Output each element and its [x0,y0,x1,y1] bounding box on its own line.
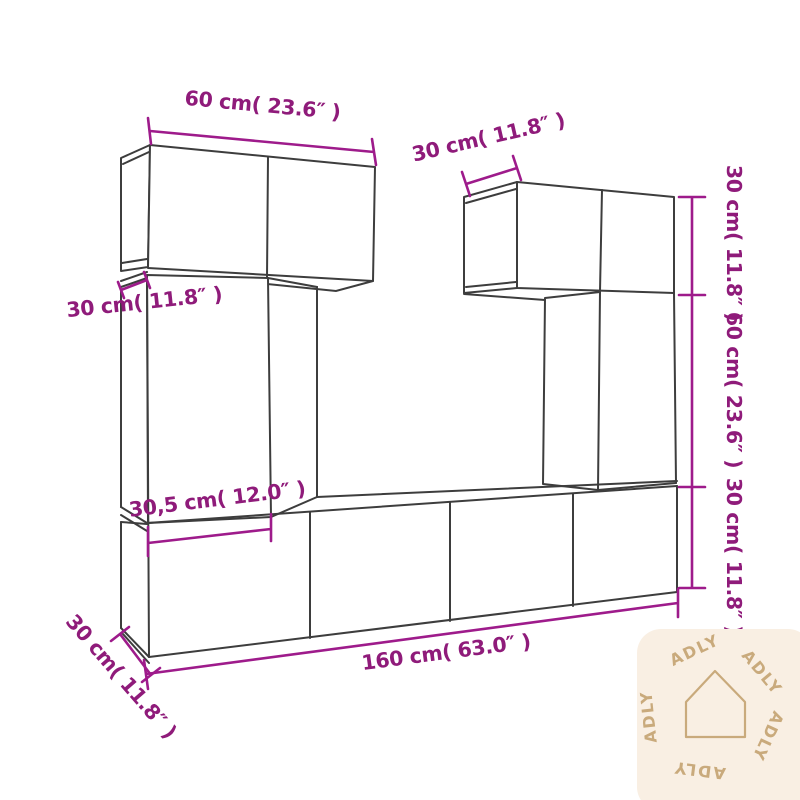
watermark: ADLY ADLY ADLY ADLY ADLY [636,629,800,800]
front-face [517,182,674,293]
furniture-diagram-canvas: 60 cm( 23.6″ ) 30 cm( 11.8″ ) 30 cm( 11.… [0,0,800,800]
right-edge [674,293,676,483]
dimension-diagram: 60 cm( 23.6″ ) 30 cm( 11.8″ ) 30 cm( 11.… [0,0,800,800]
cabinet-top-right [464,182,674,300]
side-panel [464,182,517,293]
base-bottom-line-b [123,634,149,663]
dimension-label-bench-width: 160 cm( 63.0″ ) [360,629,532,675]
dimension-line [679,197,705,588]
cabinet-column-right [543,292,676,490]
dimension-label-right-middle-height: 60 cm( 23.6″ ) [722,312,746,468]
dimension-label-right-top-height: 30 cm( 11.8″ ) [722,165,746,321]
dim-right-cabinet-depth: 30 cm( 11.8″ ) [410,108,568,196]
dimension-label-right-depth: 30 cm( 11.8″ ) [410,108,568,167]
dimension-label-top-width: 60 cm( 23.6″ ) [184,86,342,124]
cabinet-top-left [121,145,375,291]
door-divider [267,157,268,278]
side-panel [543,292,600,490]
dim-bench-width: 160 cm( 63.0″ ) [144,589,678,689]
front-face [148,145,375,281]
furniture-line-drawing [121,145,677,663]
base-side-top-edge [121,522,147,524]
dimension-label-right-bottom-height: 30 cm( 11.8″ ) [722,478,746,634]
dimension-line [144,589,678,689]
dim-right-heights: 30 cm( 11.8″ ) 60 cm( 23.6″ ) 30 cm( 11.… [679,165,746,634]
